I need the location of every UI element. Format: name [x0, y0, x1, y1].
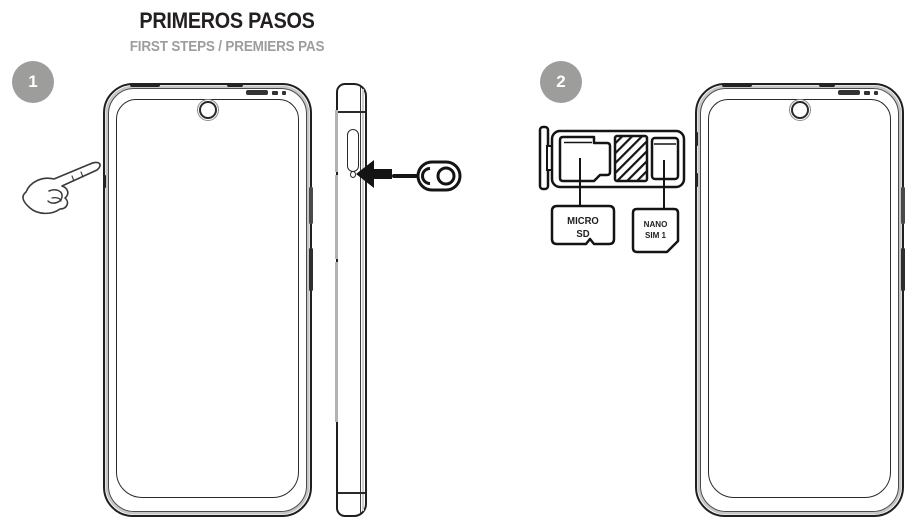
phone-side-view	[336, 83, 367, 517]
power-button	[901, 248, 905, 291]
micro-sd-label-line2: SD	[554, 228, 613, 241]
antenna-band	[722, 83, 752, 87]
step-2-number: 2	[556, 72, 565, 92]
side-top-cap-line	[338, 111, 365, 113]
first-steps-diagram: PRIMEROS PASOS FIRST STEPS / PREMIERS PA…	[0, 0, 906, 527]
earpiece-speaker-grille	[246, 90, 268, 95]
proximity-sensor	[272, 91, 278, 95]
page-subtitle: FIRST STEPS / PREMIERS PAS	[74, 38, 380, 55]
header: PRIMEROS PASOS FIRST STEPS / PREMIERS PA…	[57, 8, 397, 55]
page-title: PRIMEROS PASOS	[74, 8, 380, 34]
side-bottom-cap-line	[338, 492, 365, 494]
phone-front-step1	[103, 83, 312, 517]
side-frame-line	[360, 87, 361, 513]
proximity-sensor	[864, 91, 870, 95]
antenna-band	[819, 83, 835, 87]
arrow-left-icon	[354, 156, 394, 192]
sim-eject-tool-icon	[392, 158, 464, 194]
earpiece-speaker-grille	[838, 90, 860, 95]
antenna-strip	[335, 262, 338, 422]
antenna-band	[227, 83, 243, 87]
front-camera-icon	[791, 101, 809, 119]
phone-screen	[708, 99, 891, 498]
power-button	[309, 248, 313, 291]
antenna-strip	[335, 110, 338, 172]
sim-tray-seam	[103, 175, 106, 188]
pointing-hand-icon	[16, 152, 108, 224]
ambient-sensor	[874, 91, 878, 95]
sim-tray-seam	[695, 173, 698, 187]
nano-sim-label-line2: SIM 1	[634, 230, 677, 241]
nano-sim-label-line1: NANO	[634, 219, 677, 230]
ambient-sensor	[282, 91, 286, 95]
phone-screen	[116, 99, 299, 498]
nano-sim-label: NANO SIM 1	[634, 219, 677, 241]
side-screen-edge	[362, 89, 364, 511]
front-camera-icon	[199, 101, 217, 119]
sim-tray-seam	[695, 132, 698, 146]
micro-sd-label: MICRO SD	[554, 215, 613, 241]
phone-front-step2	[695, 83, 904, 517]
micro-sd-label-line1: MICRO	[554, 215, 613, 228]
step-1-badge: 1	[12, 61, 54, 103]
volume-button	[901, 187, 905, 224]
step-1-number: 1	[28, 72, 37, 92]
step-2-badge: 2	[540, 61, 582, 103]
antenna-strip	[335, 175, 338, 259]
volume-button	[309, 187, 313, 224]
antenna-band	[130, 83, 160, 87]
